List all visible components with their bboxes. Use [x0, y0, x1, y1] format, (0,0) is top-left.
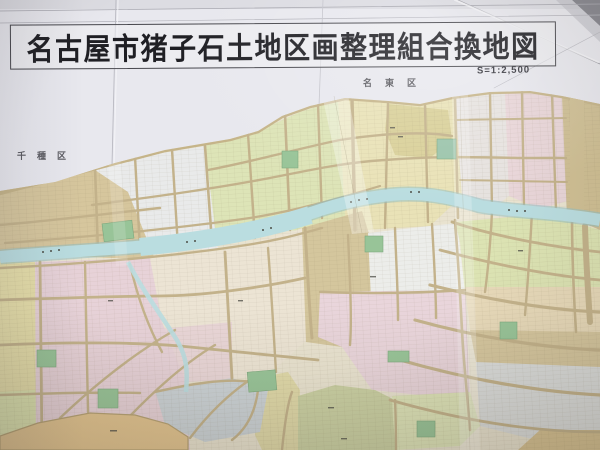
ward-label-meito: 名東区 [363, 76, 429, 89]
map-photo: 名古屋市猪子石土地区画整理組合換地図 S=1:2,500 名東区 千種区 [0, 0, 600, 450]
map-title: 名古屋市猪子石土地区画整理組合換地図 [26, 22, 539, 69]
scale-label: S=1:2,500 [477, 65, 530, 77]
ward-label-chikusa: 千種区 [17, 149, 77, 162]
map-title-box: 名古屋市猪子石土地区画整理組合換地図 [10, 21, 556, 69]
